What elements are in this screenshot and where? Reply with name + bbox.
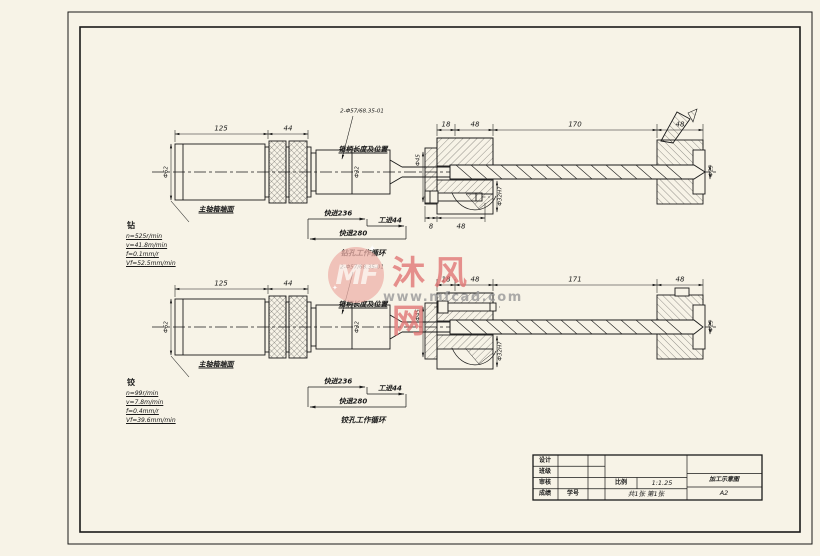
titleblock-row-class: 班级 (539, 469, 551, 475)
drawing-canvas (0, 0, 820, 556)
note-head-top: 钻 (127, 222, 135, 230)
note-v-top: v=41.8m/min (126, 243, 167, 249)
dim-body-length-bottom: 125 (214, 281, 227, 288)
note-v-bottom: v=7.8m/min (126, 400, 163, 406)
spindle-face-label-top: 主轴箱端面 (199, 207, 234, 214)
titleblock-student-no: 学号 (567, 491, 579, 497)
note-head-bottom: 铰 (127, 379, 135, 387)
cycle-work-feed-bottom: 工进44 (378, 386, 402, 393)
note-vf-bottom: Vf=39.6mm/min (126, 418, 176, 424)
dia-bush-top: Ф32H7 (498, 186, 504, 205)
note-n-top: n=525r/min (126, 234, 162, 240)
drill-bit (450, 165, 705, 179)
dim-knurl-length-bottom: 44 (284, 281, 293, 288)
cycle-work-feed-top: 工进44 (378, 218, 402, 225)
thread-spec-bottom: 2-Ф57/68.35-01 (340, 265, 384, 271)
dim-18-top: 18 (442, 122, 451, 129)
note-f-top: f=0.1mm/r (126, 252, 159, 258)
titleblock-row-design: 设计 (539, 458, 551, 464)
dia-body-bottom: Ф62 (164, 321, 170, 333)
note-vf-top: Vf=52.5mm/min (126, 261, 176, 267)
thread-spec-top: 2-Ф57/68.35-01 (340, 109, 384, 115)
bottom-view (152, 272, 716, 377)
titleblock-paper-size: A2 (720, 490, 729, 497)
dim-48b-top: 48 (676, 122, 685, 129)
dim-48b-bottom: 48 (676, 277, 685, 284)
clamp-bolt (434, 301, 500, 313)
dim-18-bottom: 18 (442, 277, 451, 284)
dim-48a-top: 48 (471, 122, 480, 129)
dim-body-length-top: 125 (214, 126, 227, 133)
titleblock-row-grade: 成绩 (539, 491, 551, 497)
cycle-rapid-back-bottom: 快退280 (339, 399, 368, 406)
cycle-rapid-in-top: 快进236 (324, 211, 353, 218)
spindle-face-label-bottom: 主轴箱端面 (199, 362, 234, 369)
dia-tool-bottom: Ф25 (709, 320, 715, 332)
titleblock-row-check: 审核 (539, 480, 551, 486)
note-n-bottom: n=99r/min (126, 391, 158, 397)
cad-drawing-page: { "colors": {"line": "#1a1a1a", "paper":… (0, 0, 820, 556)
dim-8-top: 8 (429, 224, 433, 231)
dia-plate-top: Ф45 (416, 154, 422, 166)
dia-holder-bottom: Ф32 (355, 321, 361, 333)
sheet-border (68, 12, 812, 544)
titleblock-scale-label: 比例 (615, 480, 627, 486)
dim-48c-top: 48 (457, 224, 466, 231)
dim-170-top: 170 (568, 122, 581, 129)
cycle-caption-bottom: 铰孔工作循环 (341, 416, 386, 424)
dia-plate-bottom: Ф45 (416, 309, 422, 321)
dim-171-bottom: 171 (568, 277, 581, 284)
dim-knurl-length-top: 44 (284, 126, 293, 133)
collet-note-bottom: 锥柄长度及位置 (339, 302, 388, 309)
reamer-bit (450, 320, 703, 334)
note-f-bottom: f=0.4mm/r (126, 409, 159, 415)
dim-48a-bottom: 48 (471, 277, 480, 284)
dia-tool-top: Ф25 (709, 165, 715, 177)
titleblock-sheet-info: 共1张 第1张 (628, 491, 664, 498)
cycle-caption-top: 钻孔工作循环 (341, 249, 386, 257)
titleblock-scale-value: 1:1.25 (652, 480, 673, 487)
titleblock-drawing-title: 加工示意图 (709, 477, 739, 483)
collet-note-top: 锥柄长度及位置 (339, 147, 388, 154)
dia-holder-top: Ф32 (355, 166, 361, 178)
top-view (152, 109, 716, 222)
cycle-rapid-in-bottom: 快进236 (324, 379, 353, 386)
cycle-rapid-back-top: 快退280 (339, 231, 368, 238)
dia-body-top: Ф62 (164, 166, 170, 178)
dia-bush-bottom: Ф32H7 (498, 341, 504, 360)
